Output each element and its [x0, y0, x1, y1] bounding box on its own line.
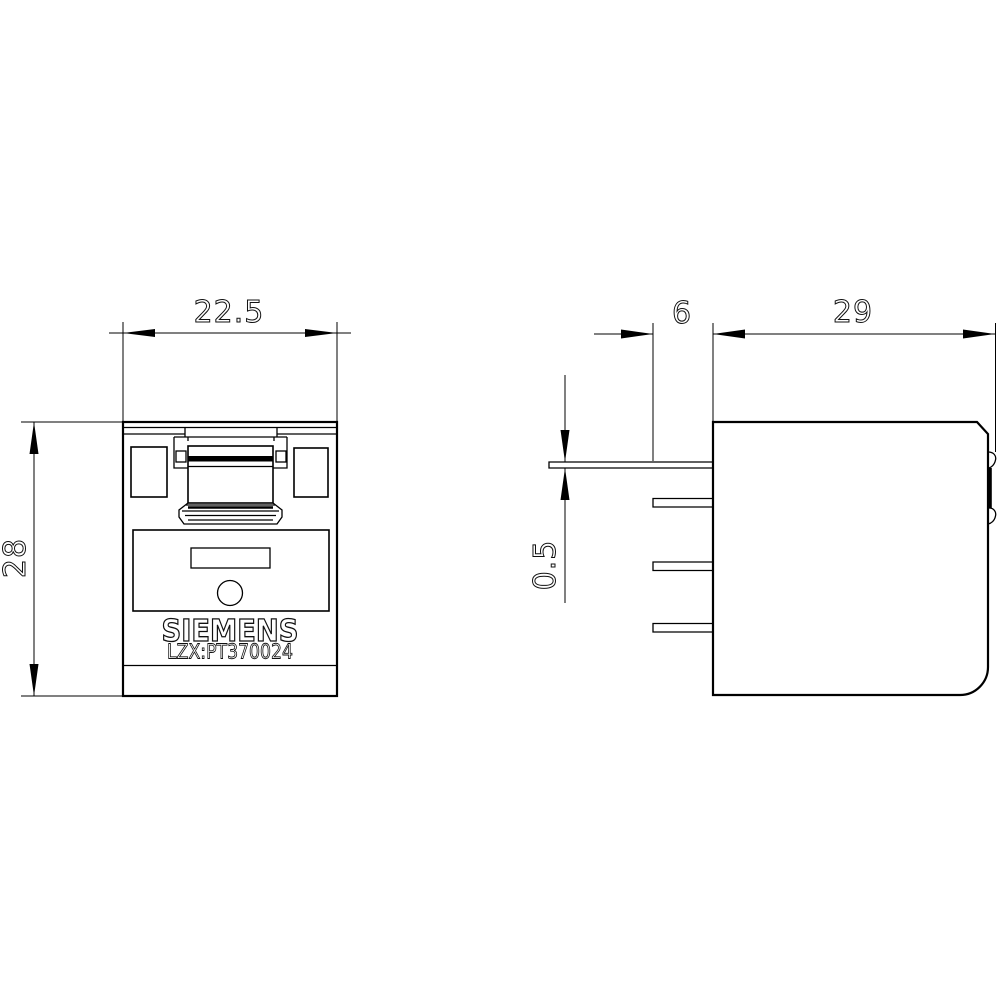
pin-offset-value: 6 [672, 296, 692, 331]
arrowhead-up-icon [561, 468, 570, 500]
side-window-right [294, 448, 328, 497]
clip-skirt-outline [179, 503, 282, 524]
side-body-outline [713, 422, 988, 695]
retaining-bracket [174, 437, 287, 468]
bracket-ear-left [176, 451, 186, 462]
side-view [549, 422, 996, 695]
indicator-window [191, 548, 270, 568]
part-number-text: LZX:PT370024 [167, 640, 293, 664]
front-view: SIEMENS LZX:PT370024 [123, 422, 337, 696]
arrowhead-right-icon [621, 330, 653, 339]
clip-block [188, 446, 273, 503]
pin-thickness-value: 0.5 [528, 540, 563, 591]
arrowhead-left-icon [123, 329, 155, 337]
depth-value: 29 [833, 295, 873, 330]
pin-short-2 [653, 562, 713, 571]
front-width-value: 22.5 [194, 295, 265, 330]
arrowhead-right-icon [963, 330, 995, 339]
rear-latch [988, 452, 996, 524]
dimension-front-width: 22.5 [109, 295, 351, 422]
side-window-left [131, 447, 167, 497]
front-height-value: 28 [0, 538, 33, 578]
pin-long [549, 462, 713, 468]
drawing-canvas: SIEMENS LZX:PT370024 22.5 28 [0, 0, 1000, 1000]
dimension-drawing: SIEMENS LZX:PT370024 22.5 28 [0, 0, 1000, 1000]
latch-tongue [174, 427, 287, 441]
bracket-ear-right [276, 451, 286, 462]
dimension-pin-offset: 6 [594, 296, 713, 461]
dimension-pin-thickness: 0.5 [528, 375, 570, 603]
test-button [218, 581, 243, 606]
arrowhead-up-icon [30, 422, 39, 454]
label-area [133, 530, 329, 611]
arrowhead-left-icon [713, 330, 745, 339]
pin-short-3 [653, 624, 713, 633]
arrowhead-down-icon [30, 664, 39, 696]
clip-dark-band [188, 456, 273, 462]
arrowhead-right-icon [305, 329, 337, 337]
pin-short-1 [653, 499, 713, 508]
dimension-front-height: 28 [0, 422, 123, 696]
dimension-depth: 29 [713, 295, 996, 452]
arrowhead-down-icon [561, 430, 570, 462]
